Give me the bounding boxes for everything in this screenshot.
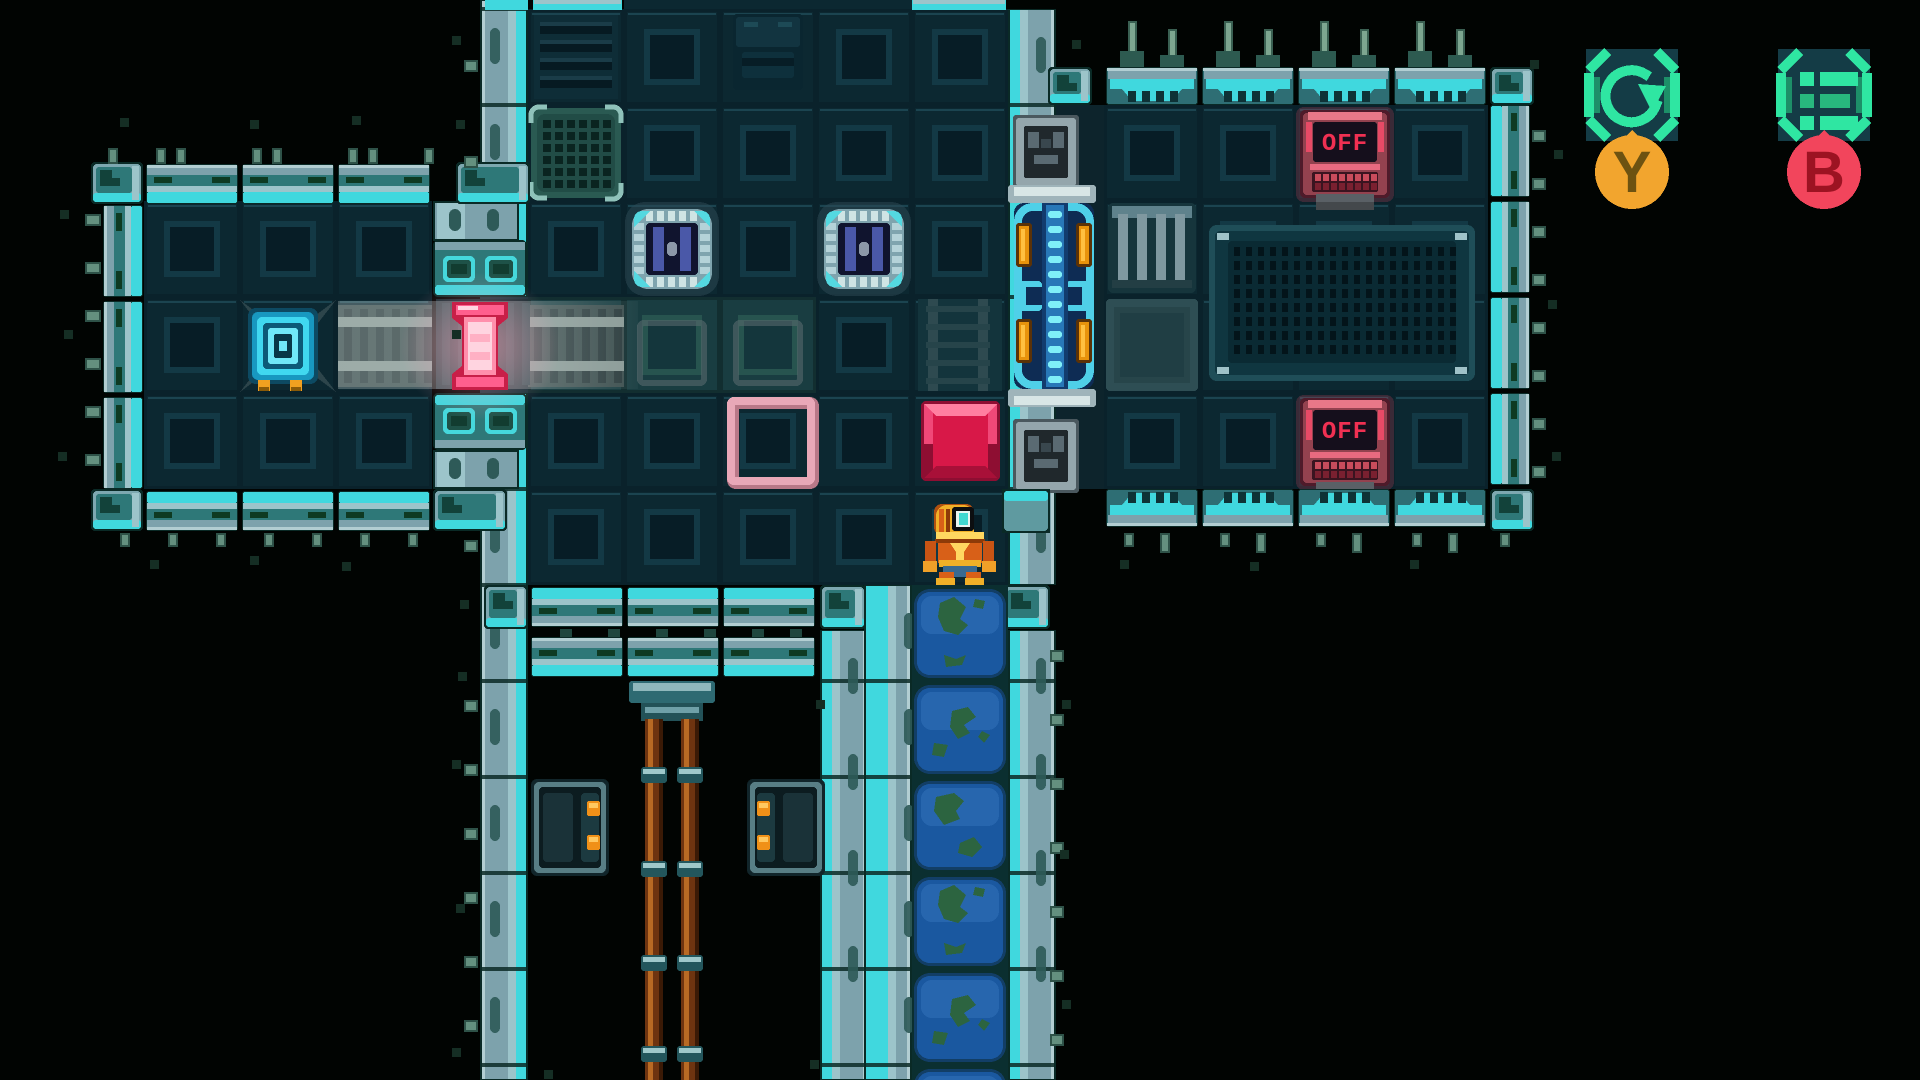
svg-text:OFF: OFF xyxy=(1322,131,1368,158)
svg-text:Y: Y xyxy=(1613,140,1652,205)
svg-text:B: B xyxy=(1803,140,1845,205)
svg-text:OFF: OFF xyxy=(1322,419,1368,446)
